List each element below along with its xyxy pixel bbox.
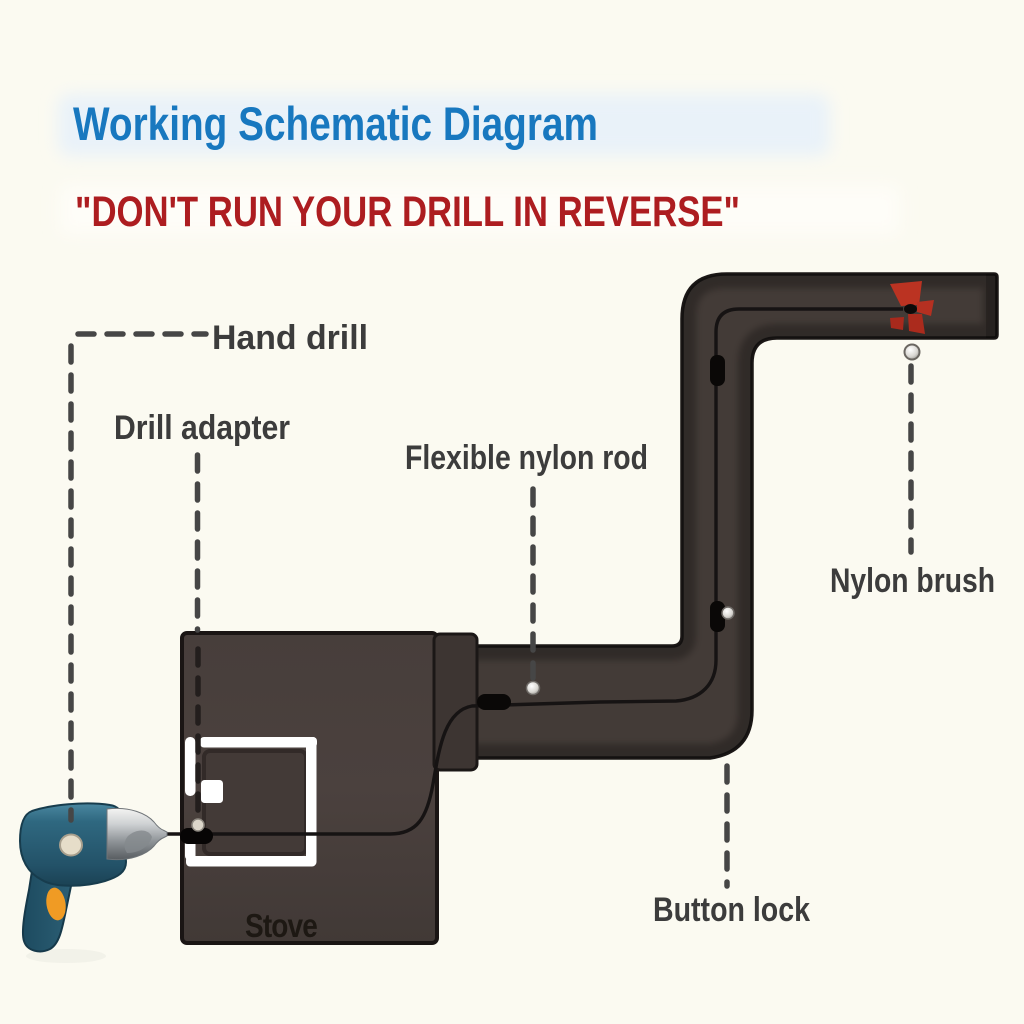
svg-text:Drill adapter: Drill adapter [114, 409, 290, 447]
svg-text:Working Schematic Diagram: Working Schematic Diagram [73, 97, 598, 150]
svg-text:Stove: Stove [245, 907, 318, 944]
svg-text:Button lock: Button lock [653, 891, 810, 929]
svg-text:"DON'T RUN YOUR DRILL IN REVER: "DON'T RUN YOUR DRILL IN REVERSE" [75, 188, 740, 236]
svg-text:Flexible nylon rod: Flexible nylon rod [405, 439, 648, 477]
svg-text:Hand drill: Hand drill [212, 319, 368, 357]
svg-text:Nylon brush: Nylon brush [830, 562, 995, 600]
